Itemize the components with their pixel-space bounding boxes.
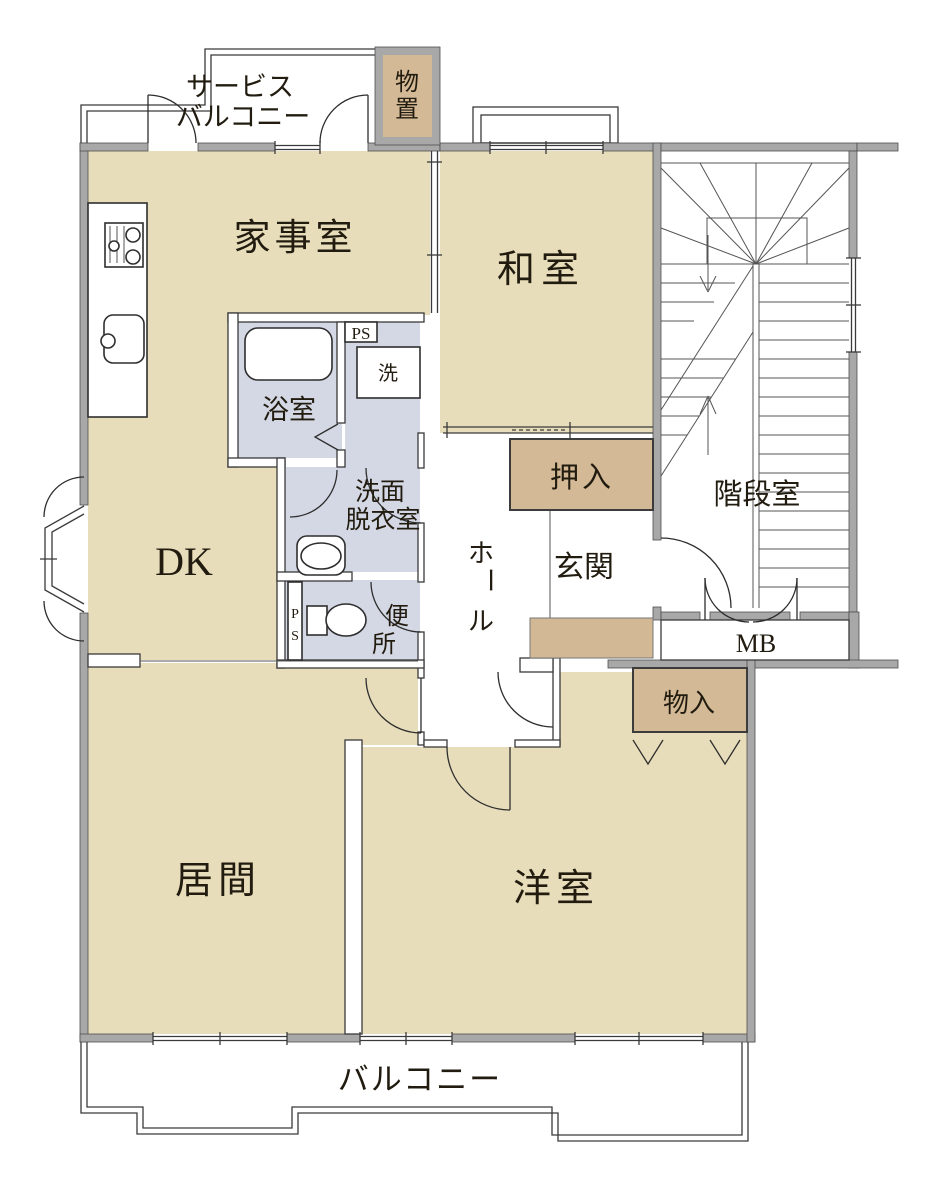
label-meter-box: MB (736, 629, 776, 658)
wall-segment (849, 151, 857, 258)
door-entrance (661, 538, 731, 608)
wall-segment (849, 612, 859, 668)
wall-segment (661, 143, 857, 151)
entrance-step-lower (520, 658, 553, 672)
dk-living-opening (88, 654, 140, 667)
label-balcony: バルコニー (338, 1062, 502, 1097)
label-utility-room: 家事室 (234, 217, 357, 259)
label-hall: ホ (468, 539, 494, 568)
wall-segment (228, 313, 424, 322)
bathtub (245, 328, 332, 380)
label-dk: DK (155, 539, 213, 584)
label-monoire: 物入 (663, 689, 715, 718)
wall-segment (440, 143, 490, 151)
floor-plan: サービス バルコニー 物 置 家事室 和室 階段室 浴室 洗 洗面 脱衣室 便 … (0, 0, 942, 1200)
wall-segment (452, 1034, 575, 1042)
label-ps-upper: PS (352, 324, 371, 343)
wall-segment (287, 1034, 360, 1042)
wall-segment (80, 143, 148, 151)
wall-segment (80, 613, 88, 1042)
label-storage-top: 置 (395, 97, 419, 123)
label-japanese-room: 和室 (497, 249, 585, 291)
wall-segment (198, 143, 275, 151)
door-service-balcony-right (320, 95, 368, 143)
wall-segment (653, 143, 661, 540)
label-storage-top: 物 (395, 69, 419, 96)
wall-segment (661, 612, 700, 620)
label-service-balcony2: バルコニー (176, 102, 310, 132)
wall-segment (80, 1034, 153, 1042)
bay-casement-top (44, 477, 84, 517)
wall-segment (553, 658, 560, 745)
entrance-step (530, 618, 653, 658)
wall-segment (849, 352, 857, 612)
label-stairwell: 階段室 (713, 478, 800, 511)
toilet (307, 604, 366, 636)
label-toilet: 便 (385, 603, 409, 630)
wall-segment (277, 458, 285, 668)
wall-segment (653, 607, 661, 620)
label-hall: ル (468, 607, 494, 636)
label-toilet: 所 (372, 631, 396, 658)
room-fill-japanese-room (440, 151, 653, 433)
label-ps-lower: P (291, 607, 299, 622)
label-service-balcony: サービス (186, 72, 294, 102)
kitchen-sink (101, 315, 144, 363)
wall-segment (337, 450, 345, 467)
window (846, 258, 861, 352)
wall-segment (418, 732, 424, 745)
label-bathroom: 浴室 (262, 395, 316, 425)
label-washroom2: 脱衣室 (345, 506, 420, 534)
label-washer: 洗 (378, 362, 398, 385)
label-ps-lower: S (291, 629, 299, 644)
washbasin (297, 536, 345, 575)
wall-segment (418, 433, 424, 468)
wall-segment (857, 143, 898, 151)
label-washroom1: 洗面 (355, 478, 405, 506)
wall-segment (337, 322, 345, 423)
wall-segment (800, 612, 849, 620)
label-hall: ー (475, 567, 504, 593)
label-western-room: 洋室 (513, 868, 599, 910)
label-oshiire: 押入 (550, 461, 614, 494)
stairs-up-arrow (700, 396, 716, 455)
label-entrance: 玄関 (554, 551, 614, 584)
wall-segment (228, 313, 238, 467)
label-living: 居間 (175, 860, 261, 902)
storage-box-fill (383, 55, 432, 137)
wall-segment (603, 143, 661, 151)
partition-living-western (345, 740, 362, 1034)
window-bay-outer (473, 107, 618, 143)
wall-segment (418, 632, 424, 678)
door-hall-corridor (498, 672, 553, 727)
kitchen-stove (105, 223, 143, 267)
wall-segment (80, 143, 88, 505)
bay-casement-bottom (44, 601, 84, 641)
window-bay-inner (481, 115, 610, 143)
wall-segment (515, 740, 560, 747)
wall-segment (747, 660, 755, 1042)
wall-segment (424, 740, 447, 747)
stairs (661, 163, 849, 608)
